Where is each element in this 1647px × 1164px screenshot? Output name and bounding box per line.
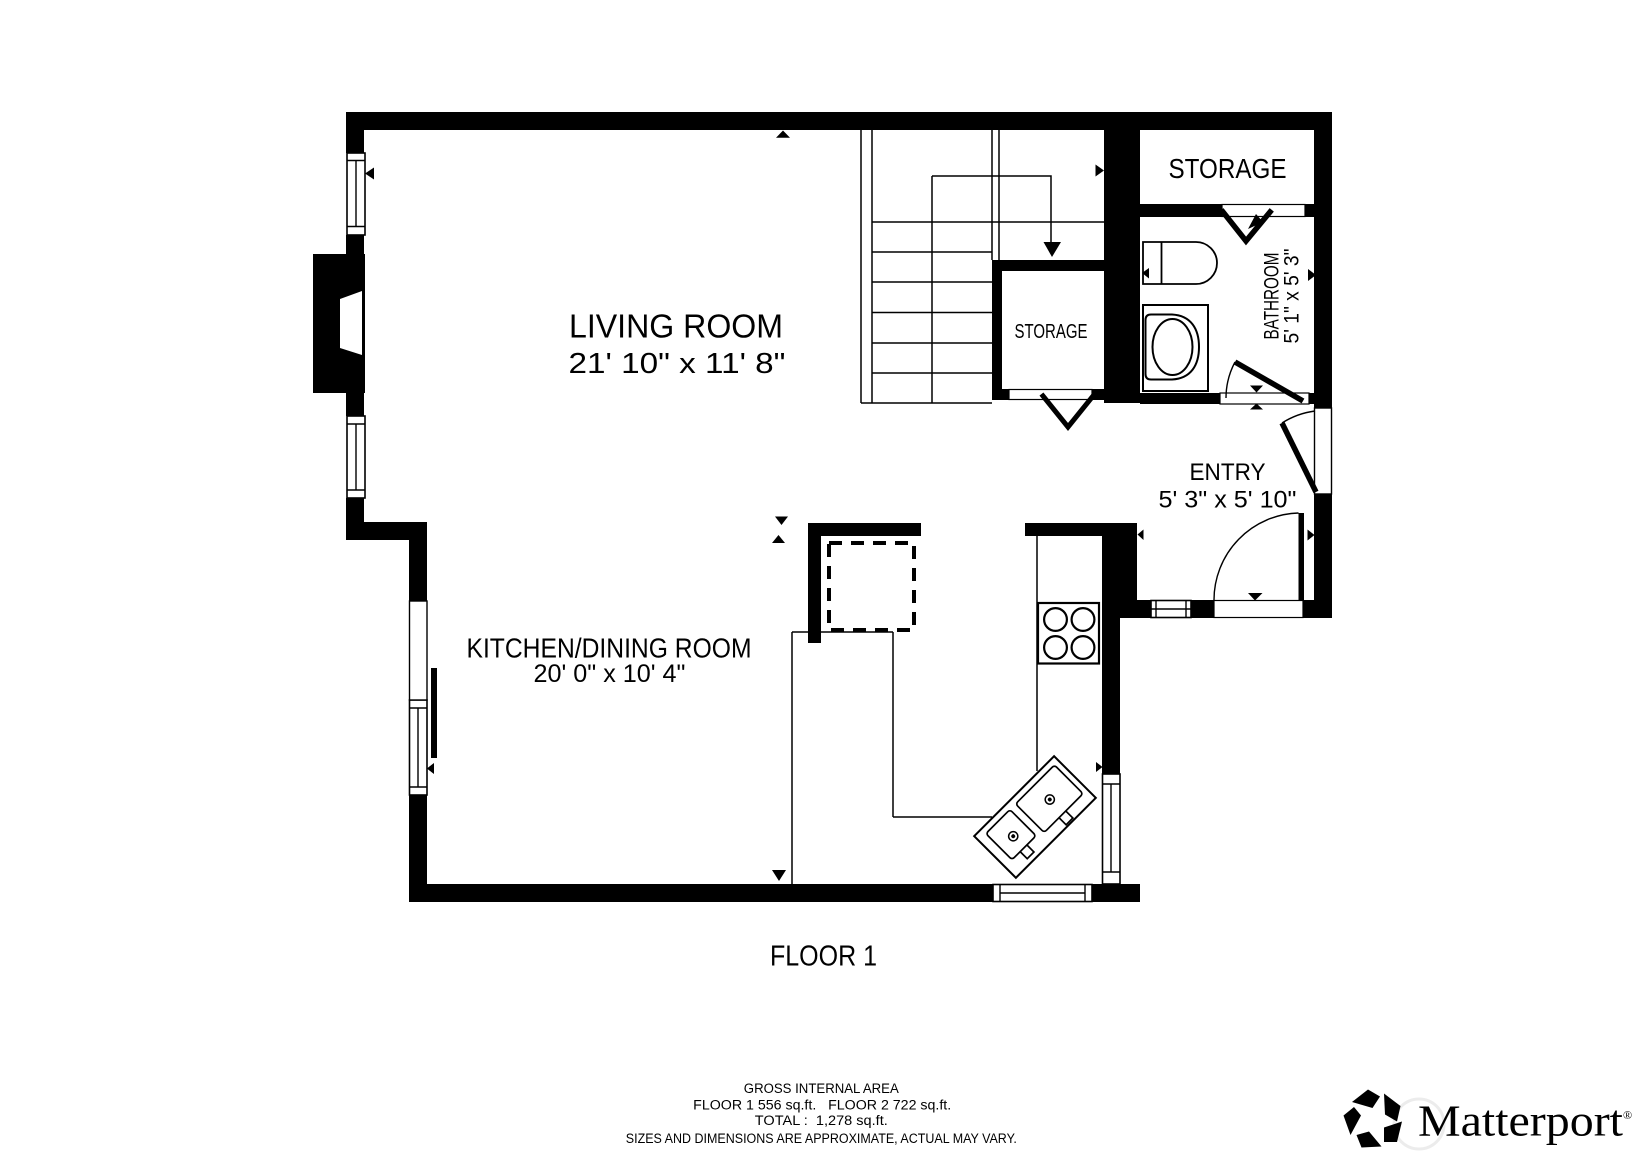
svg-text:20' 0" x 10' 4": 20' 0" x 10' 4" [534,660,686,688]
svg-text:FLOOR 1 556 sq.ft. FLOOR 2 7: FLOOR 1 556 sq.ft. FLOOR 2 722 sq.ft. [693,1098,951,1113]
svg-text:STORAGE: STORAGE [1169,153,1287,184]
svg-text:KITCHEN/DINING ROOM: KITCHEN/DINING ROOM [467,633,752,664]
svg-text:21' 10" x 11' 8": 21' 10" x 11' 8" [569,348,786,380]
svg-text:STORAGE: STORAGE [1015,321,1088,343]
svg-text:5' 1" x 5' 3": 5' 1" x 5' 3" [1281,249,1304,344]
svg-text:5' 3" x 5' 10": 5' 3" x 5' 10" [1159,487,1297,514]
svg-text:TOTAL : 1,278 sq.ft.: TOTAL : 1,278 sq.ft. [755,1113,888,1128]
svg-text:Matterport: Matterport [1418,1096,1624,1146]
svg-text:LIVING ROOM: LIVING ROOM [569,308,783,345]
svg-text:SIZES AND DIMENSIONS ARE APPRO: SIZES AND DIMENSIONS ARE APPROXIMATE, AC… [626,1131,1017,1146]
svg-text:®: ® [1623,1108,1632,1122]
svg-text:GROSS INTERNAL AREA: GROSS INTERNAL AREA [744,1081,899,1096]
svg-text:FLOOR 1: FLOOR 1 [770,941,877,973]
svg-text:ENTRY: ENTRY [1190,459,1266,486]
